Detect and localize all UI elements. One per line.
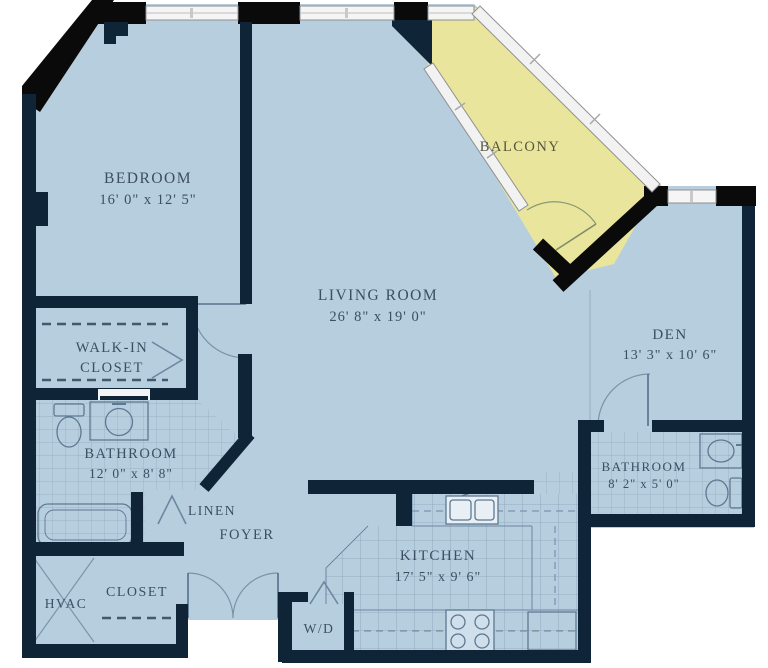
- living-room-label: LIVING ROOM: [318, 287, 438, 304]
- floor-plan-page: BEDROOM 16' 0" x 12' 5" LIVING ROOM 26' …: [0, 0, 768, 668]
- window-balcony-top: [428, 6, 474, 20]
- living-room-dims: 26' 8" x 19' 0": [329, 309, 426, 325]
- kitchen-top-wall: [308, 480, 534, 494]
- kitchen-pass-tiles: [534, 472, 578, 494]
- kitchen-dims: 17' 5" x 9' 6": [395, 570, 481, 585]
- bath2-bottom-wall: [578, 514, 754, 527]
- wall-segment: [394, 2, 428, 22]
- bath-main-bottom-wall: [22, 542, 184, 556]
- den-dims: 13' 3" x 10' 6": [623, 348, 717, 363]
- pocket-door-panel: [100, 396, 148, 400]
- kitchen-sink: [446, 492, 498, 524]
- window-top-2: [300, 6, 394, 20]
- walk-in-closet-label-1: WALK-IN: [76, 340, 149, 356]
- window-top-1: [146, 6, 238, 20]
- kitchen-stub-wall: [396, 480, 412, 526]
- kitchen-right-wall: [578, 426, 591, 663]
- walk-in-closet-label-2: CLOSET: [80, 360, 144, 376]
- left-wall: [22, 94, 36, 658]
- bedroom-label: BEDROOM: [104, 170, 192, 187]
- hvac-label: HVAC: [45, 596, 88, 611]
- bathroom-main-label: BATHROOM: [84, 446, 177, 462]
- right-wall: [742, 186, 755, 527]
- linen-label: LINEN: [188, 503, 236, 518]
- bedroom-living-wall: [240, 22, 252, 304]
- den-label: DEN: [652, 327, 687, 343]
- stove: [446, 610, 494, 652]
- bath2-top-wall-a: [578, 420, 604, 432]
- entry-jog-wall: [176, 604, 188, 658]
- bathroom-second-label: BATHROOM: [602, 459, 687, 474]
- walkin-right-wall: [186, 296, 198, 392]
- kitchen-bottom-wall: [282, 650, 590, 663]
- floor-plan-canvas: BEDROOM 16' 0" x 12' 5" LIVING ROOM 26' …: [0, 0, 768, 668]
- bottom-left-wall: [22, 644, 188, 658]
- balcony-label: BALCONY: [480, 139, 561, 155]
- closet-label: CLOSET: [106, 585, 168, 600]
- wd-top-wall: [292, 592, 308, 602]
- kitchen-label: KITCHEN: [400, 548, 476, 564]
- bathroom-main-dims: 12' 0" x 8' 8": [89, 466, 173, 481]
- bath2-top-wall-b: [652, 420, 754, 432]
- bedroom-notch: [104, 22, 128, 36]
- bathroom-second-dims: 8' 2" x 5' 0": [608, 477, 679, 491]
- foyer-label: FOYER: [219, 527, 274, 543]
- den-top-block-b: [716, 186, 756, 206]
- wd-label: W/D: [304, 621, 335, 636]
- hall-right-wall: [238, 354, 252, 438]
- wall-segment: [238, 2, 300, 24]
- left-wall-jog: [36, 192, 48, 226]
- window-den: [668, 190, 716, 203]
- bedroom-dims: 16' 0" x 12' 5": [99, 192, 196, 208]
- linen-stub-wall: [131, 492, 143, 550]
- walkin-top-wall: [22, 296, 198, 308]
- bedroom-notch2: [104, 36, 116, 44]
